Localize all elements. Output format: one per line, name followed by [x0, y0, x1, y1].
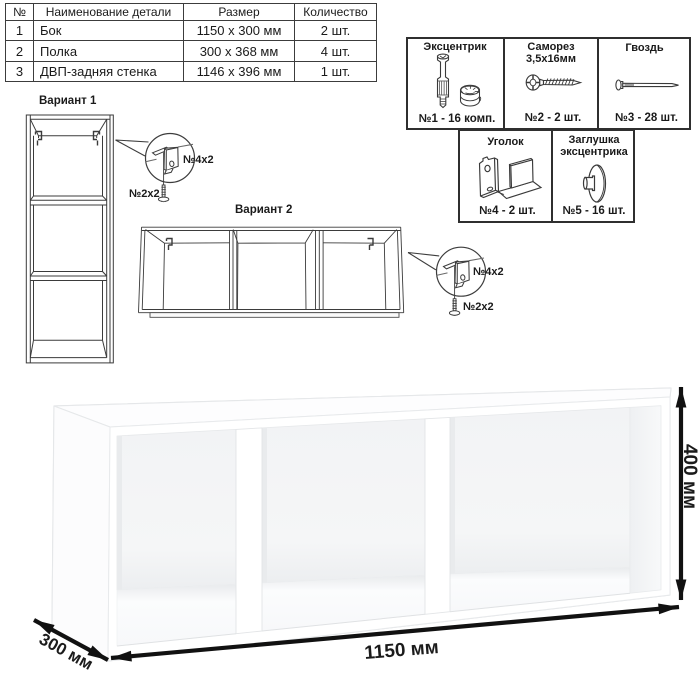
svg-text:400 мм: 400 мм: [679, 444, 700, 509]
svg-text:1150 мм: 1150 мм: [364, 637, 440, 664]
